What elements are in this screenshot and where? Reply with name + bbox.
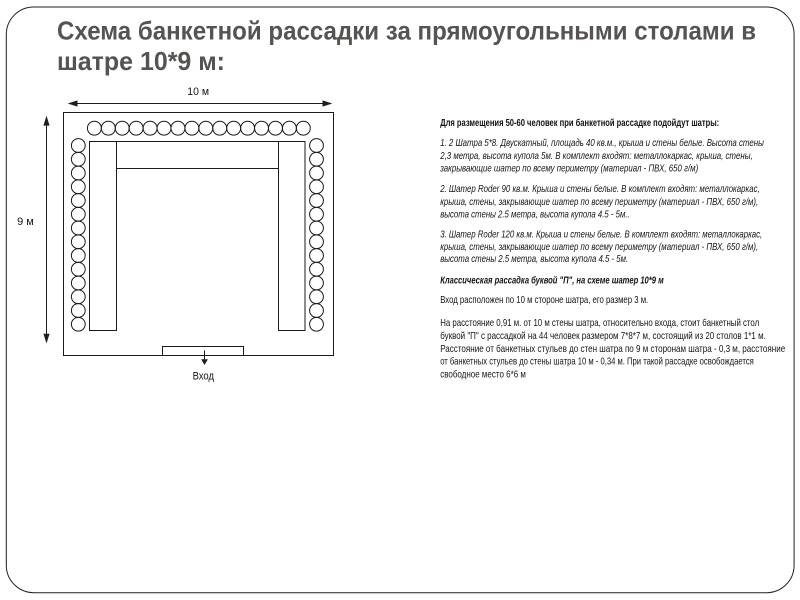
svg-text:Для размещения 50-60 человек п: Для размещения 50-60 человек при банкетн…	[440, 117, 719, 129]
svg-text:Классическая рассадка буквой ": Классическая рассадка буквой "П", на схе…	[440, 274, 664, 286]
svg-text:закрывающие шатер по всему пер: закрывающие шатер по всему периметру (ма…	[439, 163, 698, 175]
svg-text:крыша, стены, закрывающие шате: крыша, стены, закрывающие шатер по всему…	[440, 241, 758, 253]
svg-text:буквой "П" с рассадкой на 44 ч: буквой "П" с рассадкой на 44 человек раз…	[440, 330, 766, 342]
svg-text:10 м: 10 м	[187, 86, 209, 98]
svg-text:1. 2 Шатра 5*8. Двускатный, пл: 1. 2 Шатра 5*8. Двускатный, площадь 40 к…	[440, 137, 764, 149]
svg-text:На расстояние 0,91 м. от 10 м: На расстояние 0,91 м. от 10 м стены шатр…	[440, 317, 759, 329]
svg-text:3. Шатер Roder 120 кв.м. Крыша: 3. Шатер Roder 120 кв.м. Крыша и стены б…	[440, 229, 762, 241]
svg-text:Вход расположен по 10 м сторон: Вход расположен по 10 м стороне шатра, е…	[440, 294, 648, 306]
svg-text:шатре 10*9 м:: шатре 10*9 м:	[57, 46, 225, 76]
svg-text:высота стены 2.5 метра, высота: высота стены 2.5 метра, высота купола 4.…	[440, 253, 628, 265]
svg-text:высота стены 2.5 метра, высота: высота стены 2.5 метра, высота купола 4.…	[440, 209, 630, 221]
svg-text:Вход: Вход	[193, 371, 215, 383]
svg-text:Расстояние от банкетных стулье: Расстояние от банкетных стульев до стен …	[440, 343, 785, 355]
svg-text:свободное место 6*6 м: свободное место 6*6 м	[440, 369, 526, 381]
svg-text:2. Шатер Roder 90 кв.м. Крыша: 2. Шатер Roder 90 кв.м. Крыша и стены бе…	[439, 183, 759, 195]
svg-text:крыша, стены, закрывающие шате: крыша, стены, закрывающие шатер по всему…	[440, 196, 758, 208]
svg-text:2,3 метра, высота купола 5м. В: 2,3 метра, высота купола 5м. В комплект …	[439, 150, 752, 162]
svg-text:9 м: 9 м	[17, 216, 34, 228]
svg-text:от банкетных стульев до стены: от банкетных стульев до стены шатра 10 м…	[440, 356, 754, 368]
svg-text:Схема банкетной рассадки за пр: Схема банкетной рассадки за прямоугольны…	[57, 16, 756, 46]
